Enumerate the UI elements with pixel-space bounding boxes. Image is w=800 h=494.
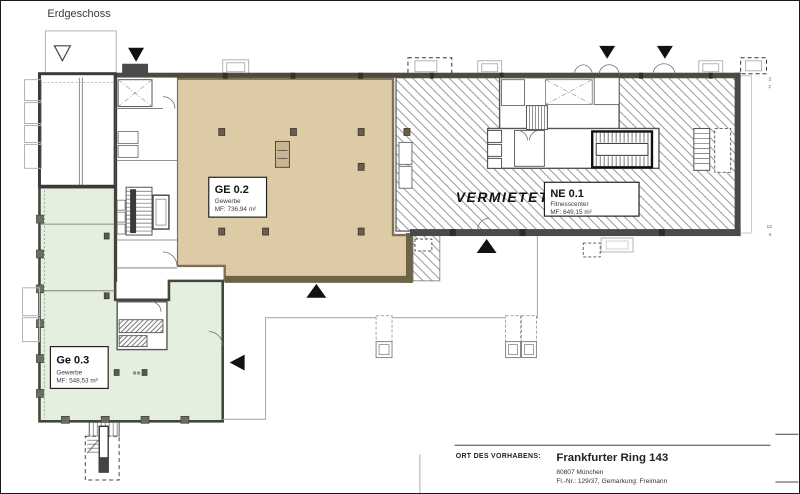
- label-box-ne01: NE 0.1 Fitnesscenter MF: 649,15 m²: [544, 182, 639, 216]
- label-box-ge02: GE 0.2 Gewerbe MF: 736,94 m²: [209, 177, 267, 217]
- arrow-up-icon: [477, 239, 497, 253]
- duct-shaft: [276, 141, 290, 167]
- elevator: [153, 195, 169, 229]
- grid-mark: 12: [767, 224, 773, 230]
- project-parcel: Fl.-Nr.: 129/37, Gemarkung: Freimann: [556, 478, 667, 485]
- zone-area: MF: 548,53 m²: [56, 377, 97, 384]
- zone-use: Fitnesscenter: [550, 201, 589, 208]
- arrow-down-outline-icon: [54, 46, 70, 61]
- arrow-up-icon: [306, 284, 326, 298]
- arrow-down-icon: [128, 48, 144, 62]
- project-title: Frankfurter Ring 143: [556, 452, 668, 464]
- zone-area: MF: 736,94 m²: [215, 206, 256, 213]
- grid-mark: 2: [769, 77, 772, 83]
- entrance-canopy-outline: [45, 31, 116, 75]
- zone-area: MF: 649,15 m²: [550, 209, 591, 216]
- exterior-stair: [85, 422, 119, 480]
- arrow-down-icon: [599, 46, 615, 59]
- floor-label: Erdgeschoss: [47, 8, 111, 20]
- stair-core-west: [115, 74, 177, 282]
- title-block-label: ORT DES VORHABENS:: [456, 453, 541, 460]
- zone-name: NE 0.1: [550, 188, 583, 200]
- zone-use: Gewerbe: [215, 198, 241, 205]
- zone-name: Ge 0.3: [56, 355, 89, 367]
- roof-canopies-top: [223, 58, 767, 74]
- rented-label: VERMIETET: [456, 189, 549, 205]
- floor-plan: Erdgeschoss: [1, 1, 799, 493]
- grid-mark: F: [769, 85, 772, 91]
- left-wing: [25, 74, 116, 188]
- label-box-ge03: Ge 0.3 Gewerbe MF: 548,53 m²: [50, 347, 108, 389]
- project-address: 80807 München: [556, 469, 603, 476]
- title-block: ORT DES VORHABENS: Frankfurter Ring 143 …: [455, 434, 799, 485]
- grid-mark: 4: [769, 232, 772, 238]
- stair-rail: [130, 189, 136, 233]
- arrow-left-icon: [230, 355, 245, 371]
- drawing-sheet: Erdgeschoss: [0, 0, 800, 494]
- property-line: [741, 76, 752, 233]
- arrow-down-icon: [657, 46, 673, 59]
- zone-name: GE 0.2: [215, 184, 249, 196]
- zone-use: Gewerbe: [56, 369, 82, 376]
